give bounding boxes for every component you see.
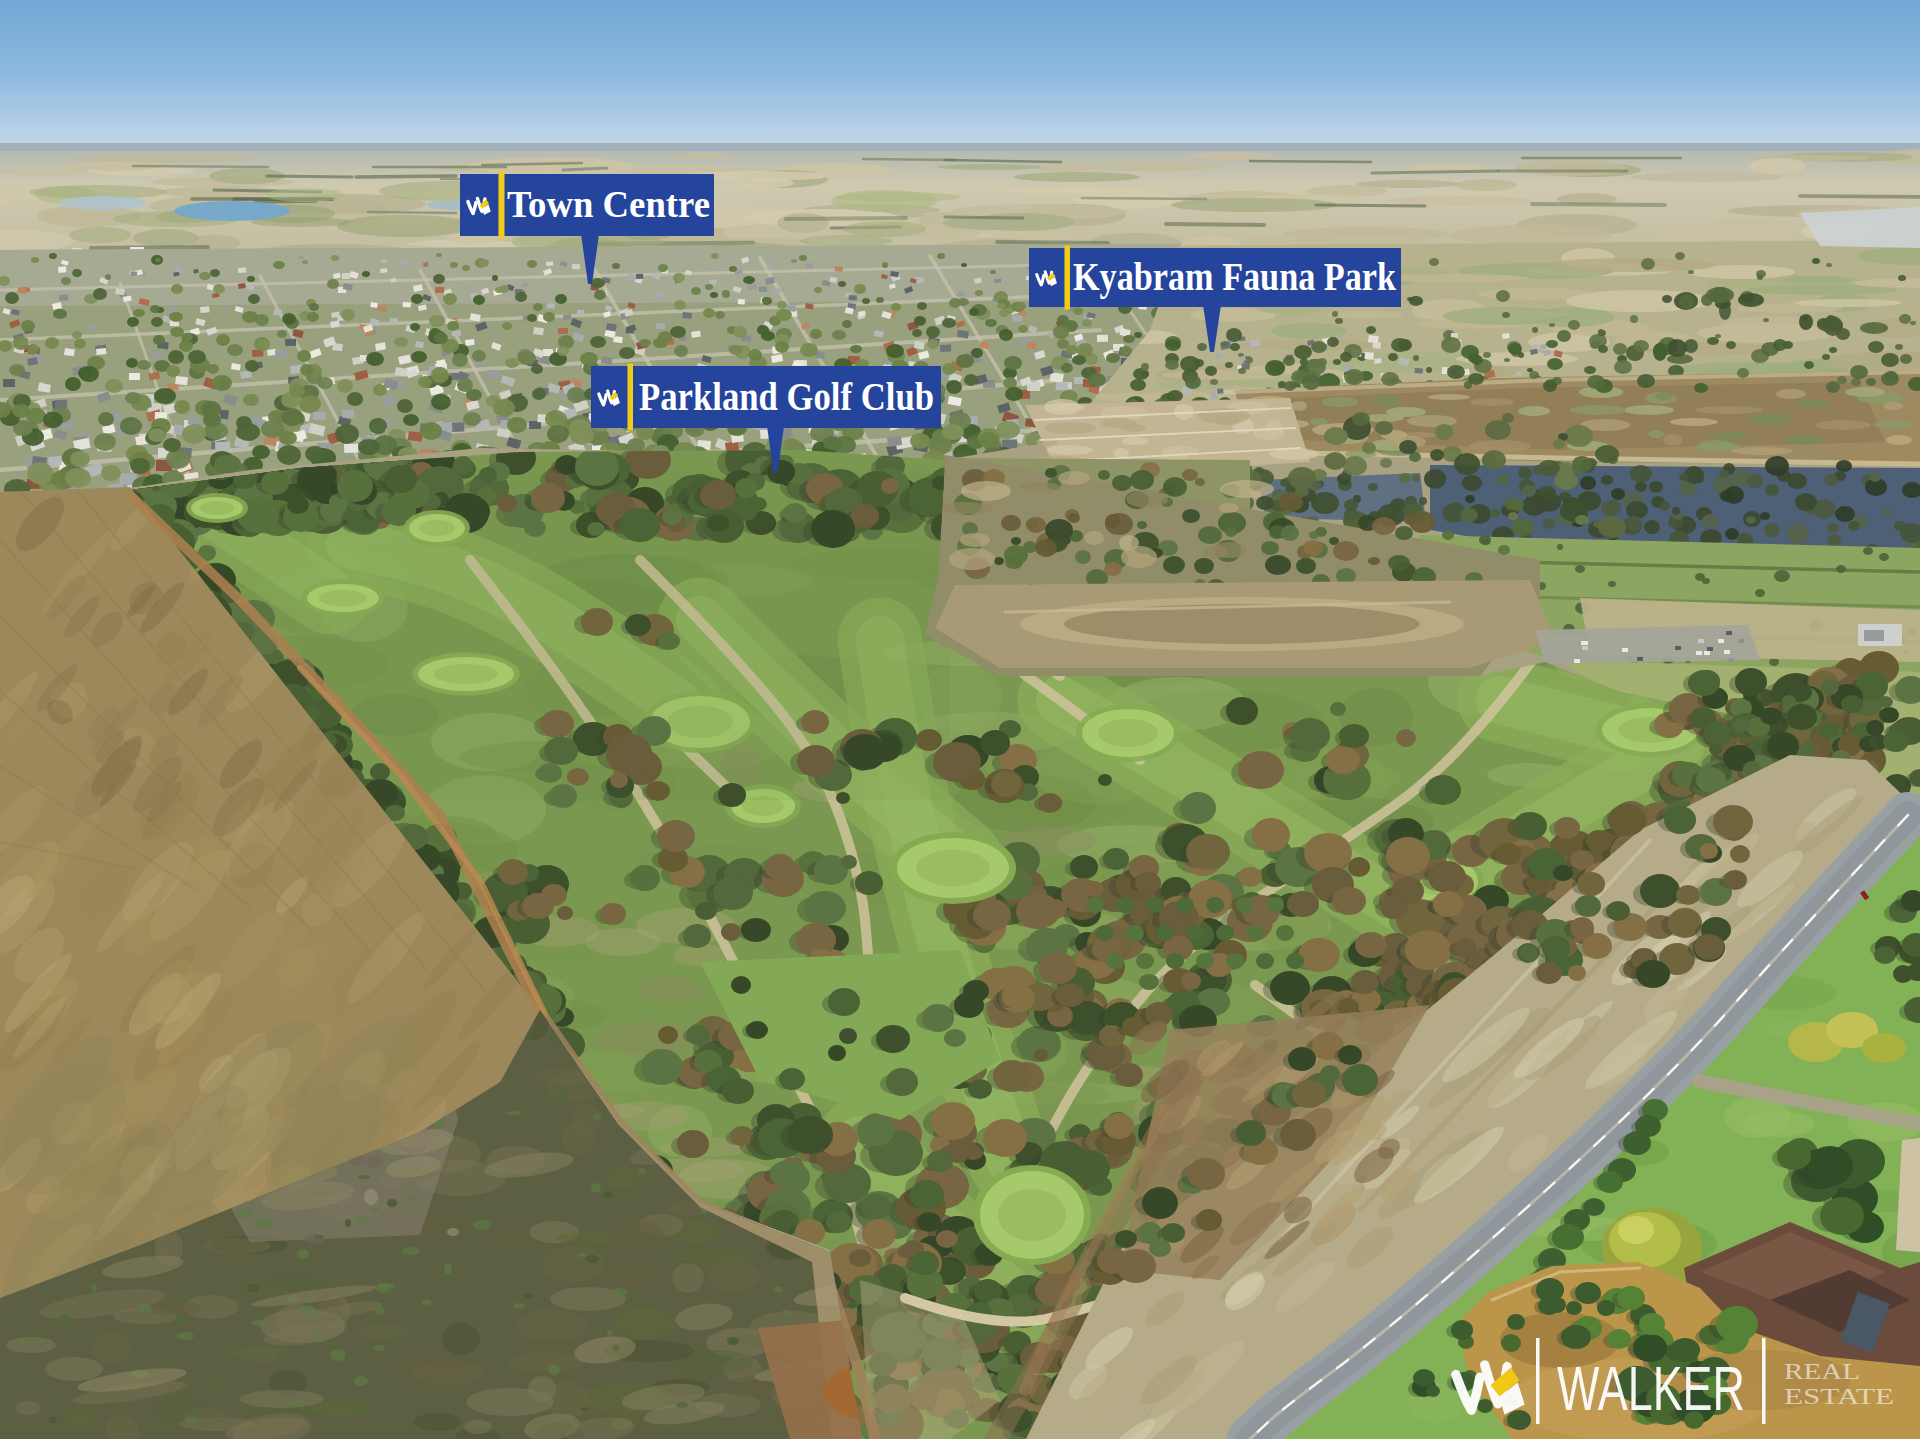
svg-text:Kyabram Fauna Park: Kyabram Fauna Park bbox=[1073, 255, 1396, 299]
svg-text:Parkland Golf Club: Parkland Golf Club bbox=[639, 374, 934, 419]
svg-text:REAL: REAL bbox=[1784, 1359, 1860, 1384]
svg-text:ESTATE: ESTATE bbox=[1784, 1384, 1894, 1409]
svg-text:Town Centre: Town Centre bbox=[507, 184, 710, 225]
svg-text:WALKER: WALKER bbox=[1557, 1353, 1745, 1423]
